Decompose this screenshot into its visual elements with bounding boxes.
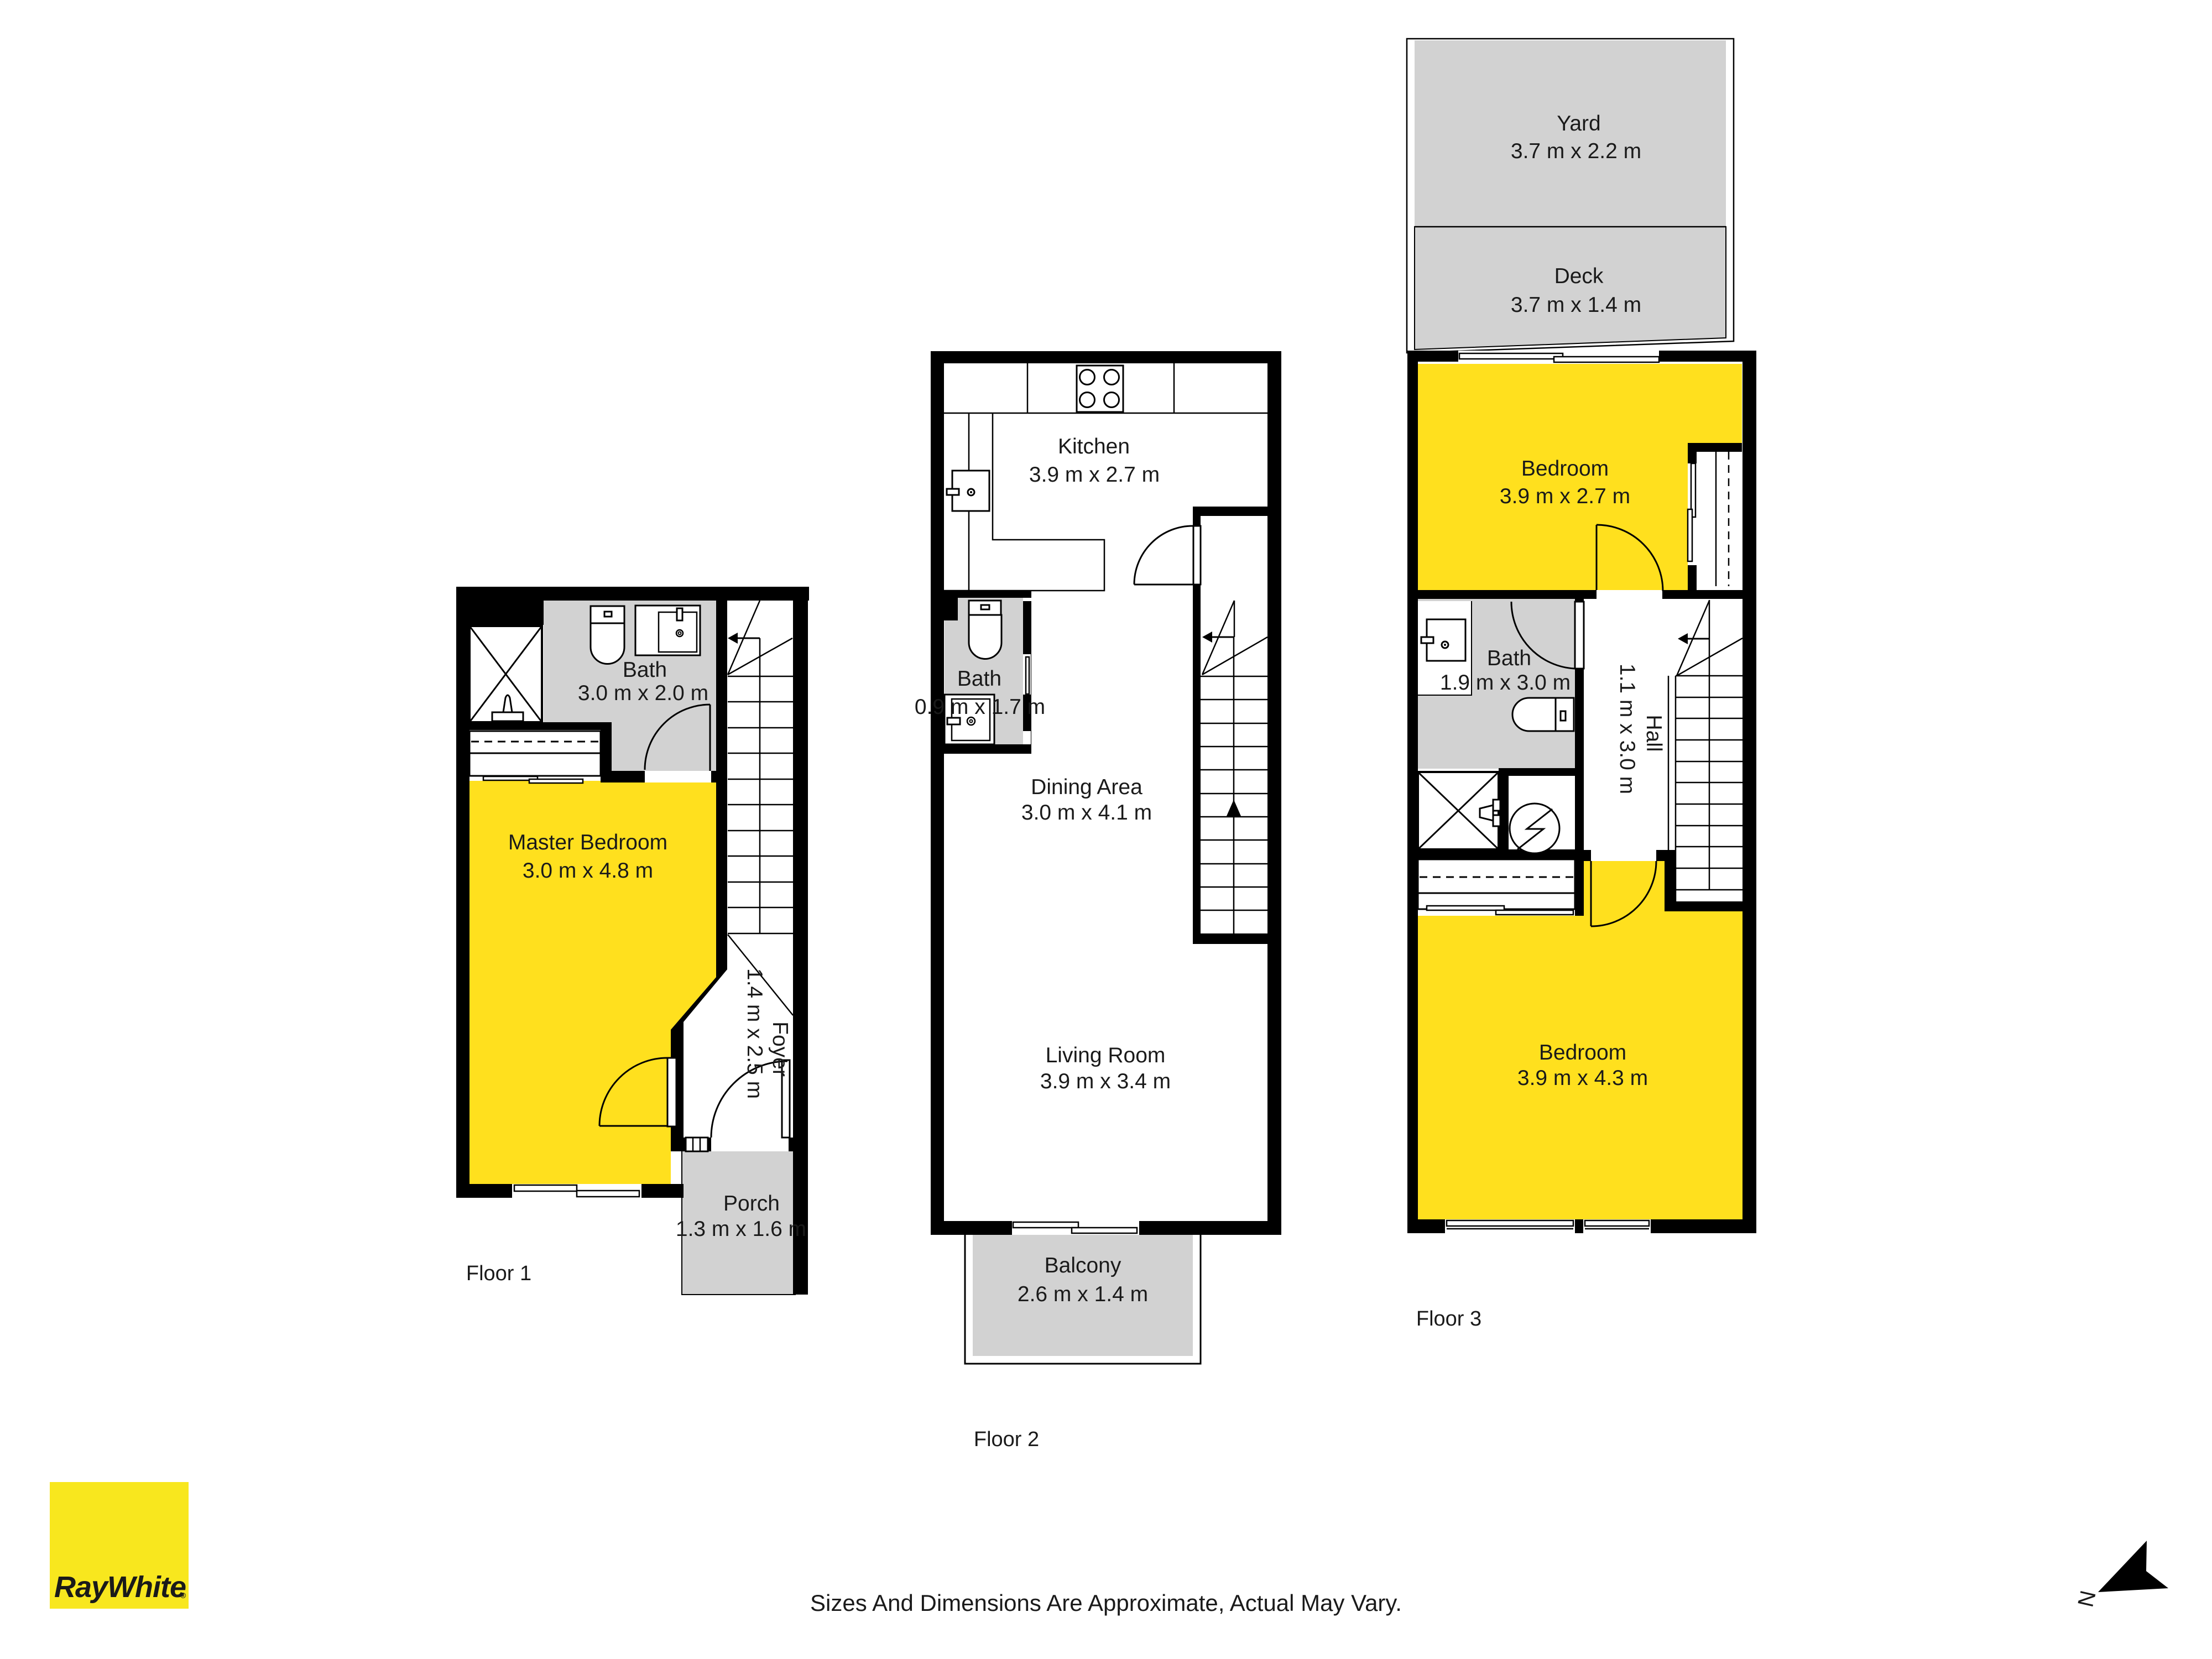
svg-text:Hall: Hall [1642, 714, 1666, 752]
svg-text:Porch: Porch [723, 1192, 780, 1215]
svg-text:3.0 m x 4.8 m: 3.0 m x 4.8 m [523, 859, 653, 883]
svg-text:Bath: Bath [1487, 646, 1531, 670]
svg-text:Foyer: Foyer [768, 1021, 792, 1077]
svg-text:3.9 m x 4.3 m: 3.9 m x 4.3 m [1517, 1066, 1648, 1090]
svg-text:3.7 m x 1.4 m: 3.7 m x 1.4 m [1511, 293, 1641, 317]
svg-text:3.0 m x 4.1 m: 3.0 m x 4.1 m [1021, 801, 1152, 825]
svg-text:3.9 m x 2.7 m: 3.9 m x 2.7 m [1500, 484, 1630, 508]
svg-text:1.3 m x 1.6 m: 1.3 m x 1.6 m [676, 1217, 806, 1241]
svg-text:1.4 m x 2.5 m: 1.4 m x 2.5 m [743, 968, 766, 1099]
svg-text:Kitchen: Kitchen [1058, 435, 1130, 458]
svg-text:1.9 m x 3.0 m: 1.9 m x 3.0 m [1440, 671, 1571, 695]
svg-text:Floor 1: Floor 1 [466, 1262, 531, 1285]
svg-text:3.9 m x 2.7 m: 3.9 m x 2.7 m [1029, 463, 1160, 487]
svg-text:1.1 m x 3.0 m: 1.1 m x 3.0 m [1615, 664, 1639, 794]
svg-text:Master Bedroom: Master Bedroom [508, 831, 667, 854]
svg-text:Floor 3: Floor 3 [1416, 1307, 1481, 1331]
svg-text:3.9 m x 3.4 m: 3.9 m x 3.4 m [1040, 1070, 1171, 1093]
svg-text:Yard: Yard [1557, 112, 1601, 135]
svg-text:®: ® [180, 1591, 186, 1600]
svg-text:RayWhite: RayWhite [54, 1571, 186, 1604]
svg-text:3.0 m x 2.0 m: 3.0 m x 2.0 m [578, 681, 708, 705]
svg-text:Bedroom: Bedroom [1539, 1041, 1626, 1065]
svg-text:Living Room: Living Room [1046, 1044, 1166, 1067]
svg-text:Balcony: Balcony [1045, 1254, 1121, 1277]
svg-text:2.6 m x 1.4 m: 2.6 m x 1.4 m [1018, 1282, 1148, 1306]
svg-text:Deck: Deck [1554, 264, 1604, 288]
svg-text:Sizes And Dimensions Are Appro: Sizes And Dimensions Are Approximate, Ac… [810, 1590, 1402, 1616]
svg-text:Floor 2: Floor 2 [974, 1428, 1039, 1451]
svg-text:Bath: Bath [957, 667, 1001, 691]
svg-text:0.9 m x 1.7 m: 0.9 m x 1.7 m [915, 695, 1045, 719]
svg-text:Dining Area: Dining Area [1031, 775, 1142, 799]
svg-text:Bedroom: Bedroom [1521, 457, 1609, 481]
svg-text:3.7 m x 2.2 m: 3.7 m x 2.2 m [1511, 139, 1641, 163]
svg-text:Bath: Bath [623, 658, 667, 682]
